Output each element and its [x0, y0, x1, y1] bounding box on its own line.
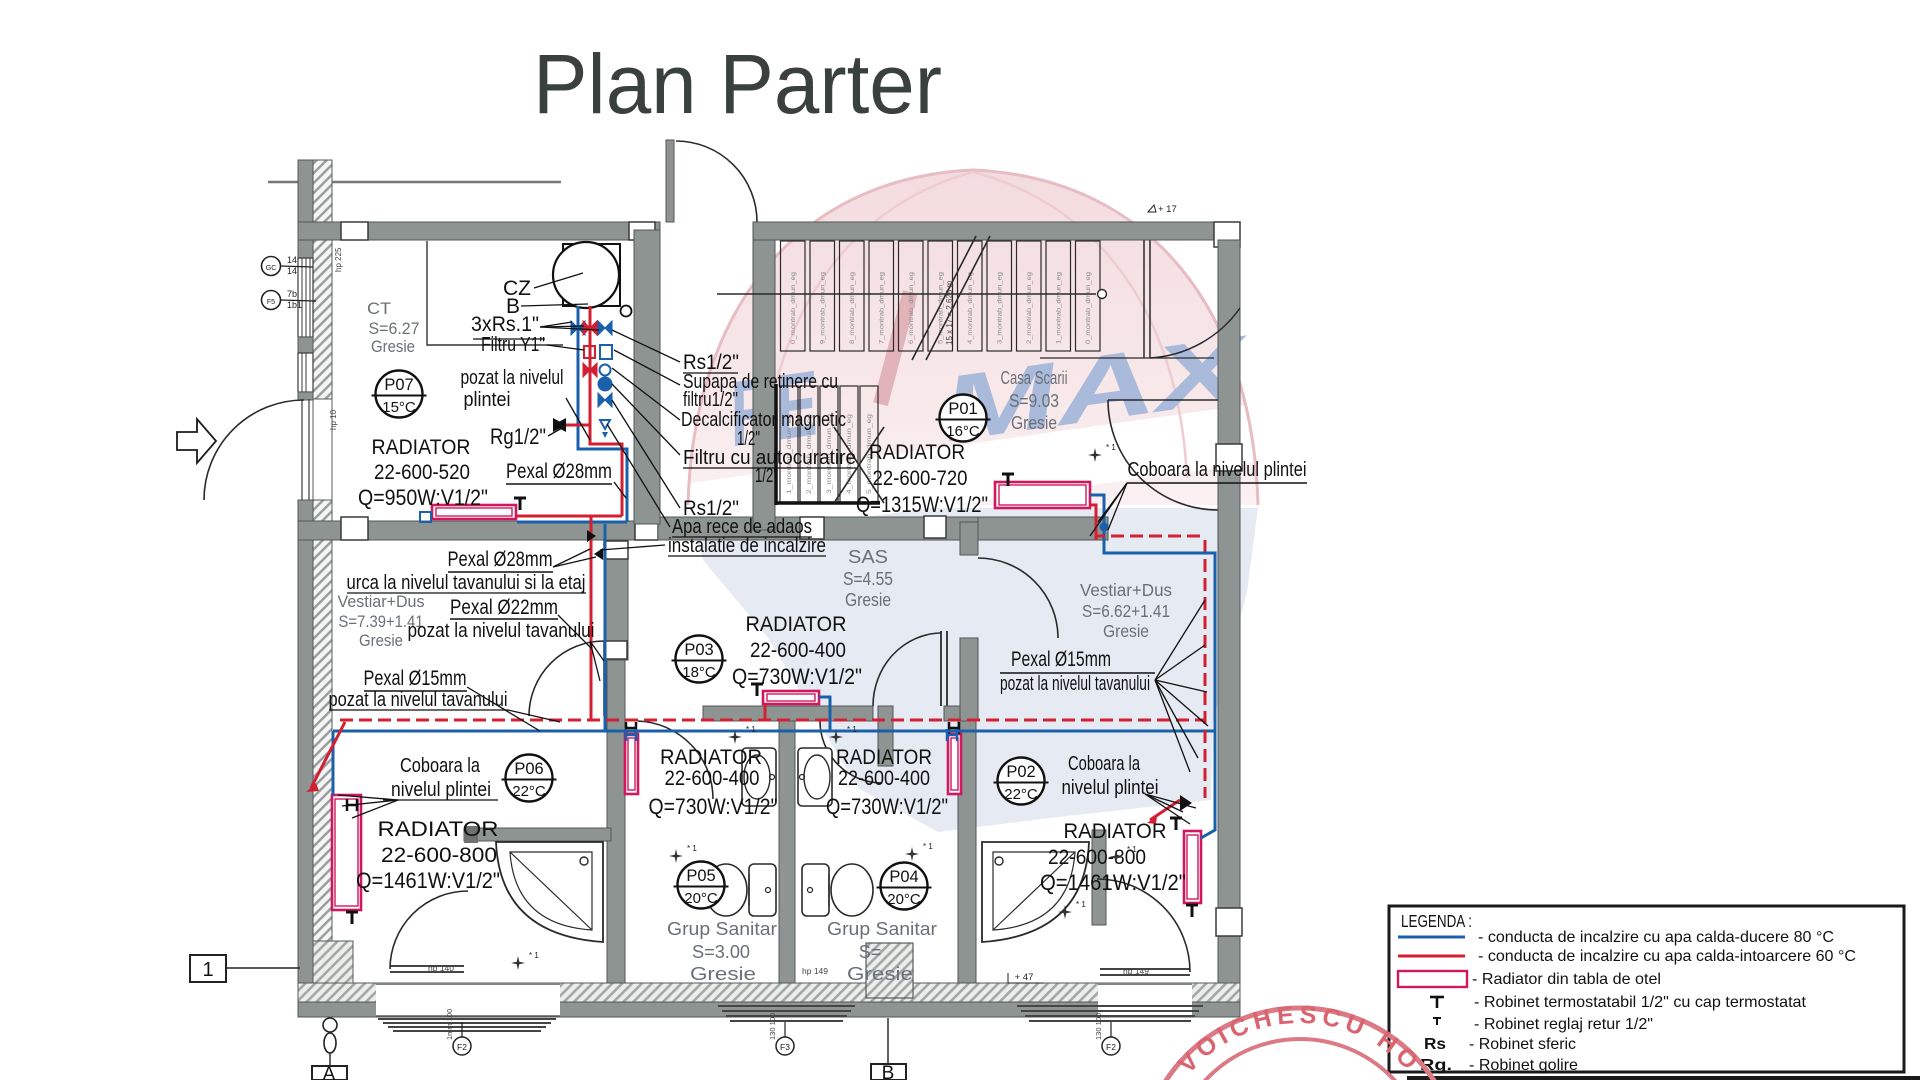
- svg-text:* 1: * 1: [746, 725, 756, 734]
- svg-text:nivelul plintei: nivelul plintei: [391, 779, 491, 801]
- svg-text:* 1: * 1: [687, 844, 697, 853]
- svg-text:22-600-800: 22-600-800: [381, 844, 497, 867]
- svg-text:20°C: 20°C: [684, 890, 718, 907]
- svg-text:- Robinet golire: - Robinet golire: [1469, 1057, 1578, 1074]
- svg-text:Decalcificator magnetic: Decalcificator magnetic: [681, 409, 846, 431]
- svg-text:RADIATOR: RADIATOR: [378, 818, 499, 841]
- svg-text:+ 47: + 47: [1015, 972, 1034, 983]
- svg-text:22°C: 22°C: [1004, 786, 1038, 803]
- svg-text:P05: P05: [686, 867, 715, 885]
- svg-text:RADIATOR: RADIATOR: [869, 441, 965, 464]
- svg-text:Grup Sanitar: Grup Sanitar: [827, 919, 937, 939]
- svg-text:F2: F2: [457, 1042, 467, 1052]
- svg-text:Q=730W:V1/2": Q=730W:V1/2": [826, 794, 948, 819]
- svg-text:2_montrab_dmun_eg: 2_montrab_dmun_eg: [1027, 272, 1033, 344]
- svg-text:F5: F5: [267, 299, 275, 306]
- svg-text:Q=1461W:V1/2": Q=1461W:V1/2": [1040, 870, 1186, 895]
- svg-text:Filtru Y1": Filtru Y1": [481, 334, 545, 356]
- svg-text:GC: GC: [266, 265, 277, 272]
- svg-text:22-600-520: 22-600-520: [374, 461, 470, 484]
- svg-text:Rs: Rs: [1424, 1036, 1446, 1053]
- svg-text:Pexal Ø28mm: Pexal Ø28mm: [506, 460, 612, 483]
- svg-text:Gresie: Gresie: [690, 964, 756, 984]
- svg-text:1mm 100: 1mm 100: [445, 1009, 454, 1040]
- svg-text:S=9.03: S=9.03: [1009, 391, 1059, 411]
- svg-text:15°C: 15°C: [382, 399, 416, 416]
- svg-text:hp 10: hp 10: [329, 409, 338, 430]
- svg-text:F3: F3: [780, 1042, 790, 1052]
- svg-text:20°C: 20°C: [887, 891, 921, 908]
- svg-text:3_montrab_dmun_eg: 3_montrab_dmun_eg: [998, 272, 1004, 344]
- svg-text:Grup Sanitar: Grup Sanitar: [667, 919, 777, 939]
- svg-text:3xRs.1": 3xRs.1": [471, 313, 539, 336]
- svg-text:S=6.62+1.41: S=6.62+1.41: [1082, 601, 1170, 621]
- svg-text:Gresie: Gresie: [1103, 621, 1149, 641]
- svg-text:1b1: 1b1: [287, 300, 302, 310]
- svg-text:* 1: * 1: [1106, 443, 1116, 452]
- svg-text:Coboara la: Coboara la: [1068, 753, 1141, 775]
- svg-text:22-600-720: 22-600-720: [873, 467, 968, 490]
- svg-text:Gresie: Gresie: [1011, 413, 1057, 433]
- svg-text:18°C: 18°C: [682, 664, 716, 681]
- svg-text:hp 149: hp 149: [1123, 966, 1149, 976]
- svg-text:P06: P06: [514, 760, 543, 778]
- svg-text:Rg1/2": Rg1/2": [490, 424, 546, 449]
- svg-text:Q=730W:V1/2": Q=730W:V1/2": [649, 794, 778, 819]
- svg-text:pozat la nivelul tavanului: pozat la nivelul tavanului: [1000, 673, 1150, 695]
- svg-text:S=6.27: S=6.27: [369, 319, 420, 338]
- svg-text:hp 149: hp 149: [802, 966, 828, 976]
- svg-text:S=4.55: S=4.55: [843, 569, 893, 589]
- svg-text:Vestiar+Dus: Vestiar+Dus: [338, 592, 425, 611]
- svg-text:LEGENDA :: LEGENDA :: [1401, 911, 1472, 931]
- svg-text:15 x 17 = 2.625 m: 15 x 17 = 2.625 m: [945, 280, 954, 345]
- svg-text:hp 140: hp 140: [428, 963, 454, 973]
- svg-text:- conducta de incalzire cu apa: - conducta de incalzire cu apa calda-int…: [1478, 948, 1856, 965]
- svg-text:* 1: * 1: [529, 951, 539, 960]
- svg-text:130 100: 130 100: [768, 1013, 777, 1040]
- svg-text:RADIATOR: RADIATOR: [660, 746, 762, 769]
- svg-text:22-600-400: 22-600-400: [838, 767, 930, 790]
- svg-text:6_montrab_dmun_eg: 6_montrab_dmun_eg: [909, 272, 915, 344]
- svg-text:- conducta de incalzire cu apa: - conducta de incalzire cu apa calda-duc…: [1478, 929, 1834, 946]
- svg-text:22-600-400: 22-600-400: [750, 639, 846, 662]
- svg-text:RADIATOR: RADIATOR: [836, 746, 932, 769]
- svg-text:pozat la nivelul tavanului: pozat la nivelul tavanului: [329, 689, 508, 711]
- svg-text:0_montrab_dmun_eg: 0_montrab_dmun_eg: [1086, 272, 1092, 344]
- svg-text:22-600-400: 22-600-400: [665, 767, 760, 790]
- svg-text:- Radiator din tabla de otel: - Radiator din tabla de otel: [1472, 971, 1661, 988]
- svg-text:RADIATOR: RADIATOR: [1064, 820, 1167, 843]
- svg-text:0_montrab_dmun_eg: 0_montrab_dmun_eg: [791, 272, 797, 344]
- svg-text:hp 225: hp 225: [334, 247, 343, 272]
- svg-text:B: B: [882, 1063, 895, 1080]
- svg-text:Pexal Ø15mm: Pexal Ø15mm: [1011, 648, 1111, 671]
- svg-text:4_montrab_dmun_eg: 4_montrab_dmun_eg: [968, 272, 974, 344]
- svg-text:* 1: * 1: [1127, 845, 1137, 854]
- svg-text:130 100: 130 100: [1094, 1013, 1103, 1040]
- svg-text:Gresie: Gresie: [847, 964, 913, 984]
- svg-text:P07: P07: [384, 376, 413, 394]
- svg-text:RADIATOR: RADIATOR: [746, 613, 847, 636]
- svg-text:S=: S=: [859, 942, 882, 962]
- svg-text:9_montrab_dmun_eg: 9_montrab_dmun_eg: [821, 272, 827, 344]
- svg-text:Vestiar+Dus: Vestiar+Dus: [1080, 580, 1172, 600]
- svg-text:Pexal Ø15mm: Pexal Ø15mm: [364, 667, 467, 690]
- svg-text:Q=950W:V1/2": Q=950W:V1/2": [358, 485, 488, 510]
- svg-text:Q=1315W:V1/2": Q=1315W:V1/2": [856, 492, 988, 517]
- svg-text:P02: P02: [1006, 763, 1035, 781]
- svg-text:nivelul plintei: nivelul plintei: [1062, 777, 1159, 799]
- svg-text:CT: CT: [367, 299, 391, 318]
- svg-text:- Robinet termostatabil 1/2" c: - Robinet termostatabil 1/2" cu cap term…: [1474, 994, 1807, 1011]
- svg-text:- Robinet reglaj retur 1/2": - Robinet reglaj retur 1/2": [1474, 1016, 1653, 1033]
- svg-text:14: 14: [287, 255, 297, 265]
- svg-text:urca la nivelul tavanului si l: urca la nivelul tavanului si la etaj: [347, 572, 586, 594]
- svg-text:P04: P04: [889, 868, 918, 886]
- svg-text:Gresie: Gresie: [359, 631, 403, 650]
- svg-text:A: A: [323, 1064, 336, 1080]
- svg-text:Coboara la nivelul plintei: Coboara la nivelul plintei: [1128, 459, 1307, 481]
- svg-text:+ 17: + 17: [1158, 204, 1177, 215]
- svg-text:F2: F2: [1106, 1042, 1116, 1052]
- svg-text:Q=730W:V1/2": Q=730W:V1/2": [732, 664, 862, 689]
- svg-text:Gresie: Gresie: [371, 337, 415, 356]
- svg-text:pozat la nivelul: pozat la nivelul: [461, 367, 564, 389]
- svg-text:Plan Parter: Plan Parter: [533, 37, 942, 131]
- svg-text:* 1: * 1: [847, 725, 857, 734]
- svg-text:plintei: plintei: [464, 389, 511, 411]
- svg-text:16°C: 16°C: [946, 423, 980, 440]
- svg-text:- Robinet sferic: - Robinet sferic: [1469, 1036, 1576, 1053]
- svg-text:1: 1: [202, 959, 213, 981]
- svg-text:14: 14: [287, 266, 297, 276]
- svg-text:7_montrab_dmun_eg: 7_montrab_dmun_eg: [880, 272, 886, 344]
- svg-text:P03: P03: [684, 641, 713, 659]
- svg-text:instalatie de incalzire: instalatie de incalzire: [668, 535, 826, 557]
- svg-text:7b: 7b: [287, 289, 297, 299]
- svg-text:Q=1461W:V1/2": Q=1461W:V1/2": [356, 868, 500, 893]
- svg-text:P01: P01: [948, 400, 977, 418]
- svg-text:S=3.00: S=3.00: [692, 942, 750, 962]
- svg-text:SAS: SAS: [848, 547, 888, 567]
- svg-text:Coboara la: Coboara la: [400, 755, 481, 777]
- svg-text:22°C: 22°C: [512, 783, 546, 800]
- svg-text:* 1: * 1: [923, 842, 933, 851]
- svg-text:Pexal Ø28mm: Pexal Ø28mm: [448, 548, 553, 571]
- svg-text:1/2": 1/2": [755, 465, 778, 487]
- svg-text:* 1: * 1: [1076, 900, 1086, 909]
- svg-text:Casa Scarii: Casa Scarii: [1001, 368, 1068, 388]
- svg-text:Gresie: Gresie: [845, 590, 891, 610]
- svg-text:RADIATOR: RADIATOR: [372, 436, 471, 459]
- svg-text:Pexal Ø22mm: Pexal Ø22mm: [450, 596, 558, 619]
- svg-text:1_montrab_dmun_eg: 1_montrab_dmun_eg: [1057, 272, 1063, 344]
- svg-text:filtru1/2": filtru1/2": [683, 389, 738, 411]
- svg-text:8_montrab_dmun_eg: 8_montrab_dmun_eg: [850, 272, 856, 344]
